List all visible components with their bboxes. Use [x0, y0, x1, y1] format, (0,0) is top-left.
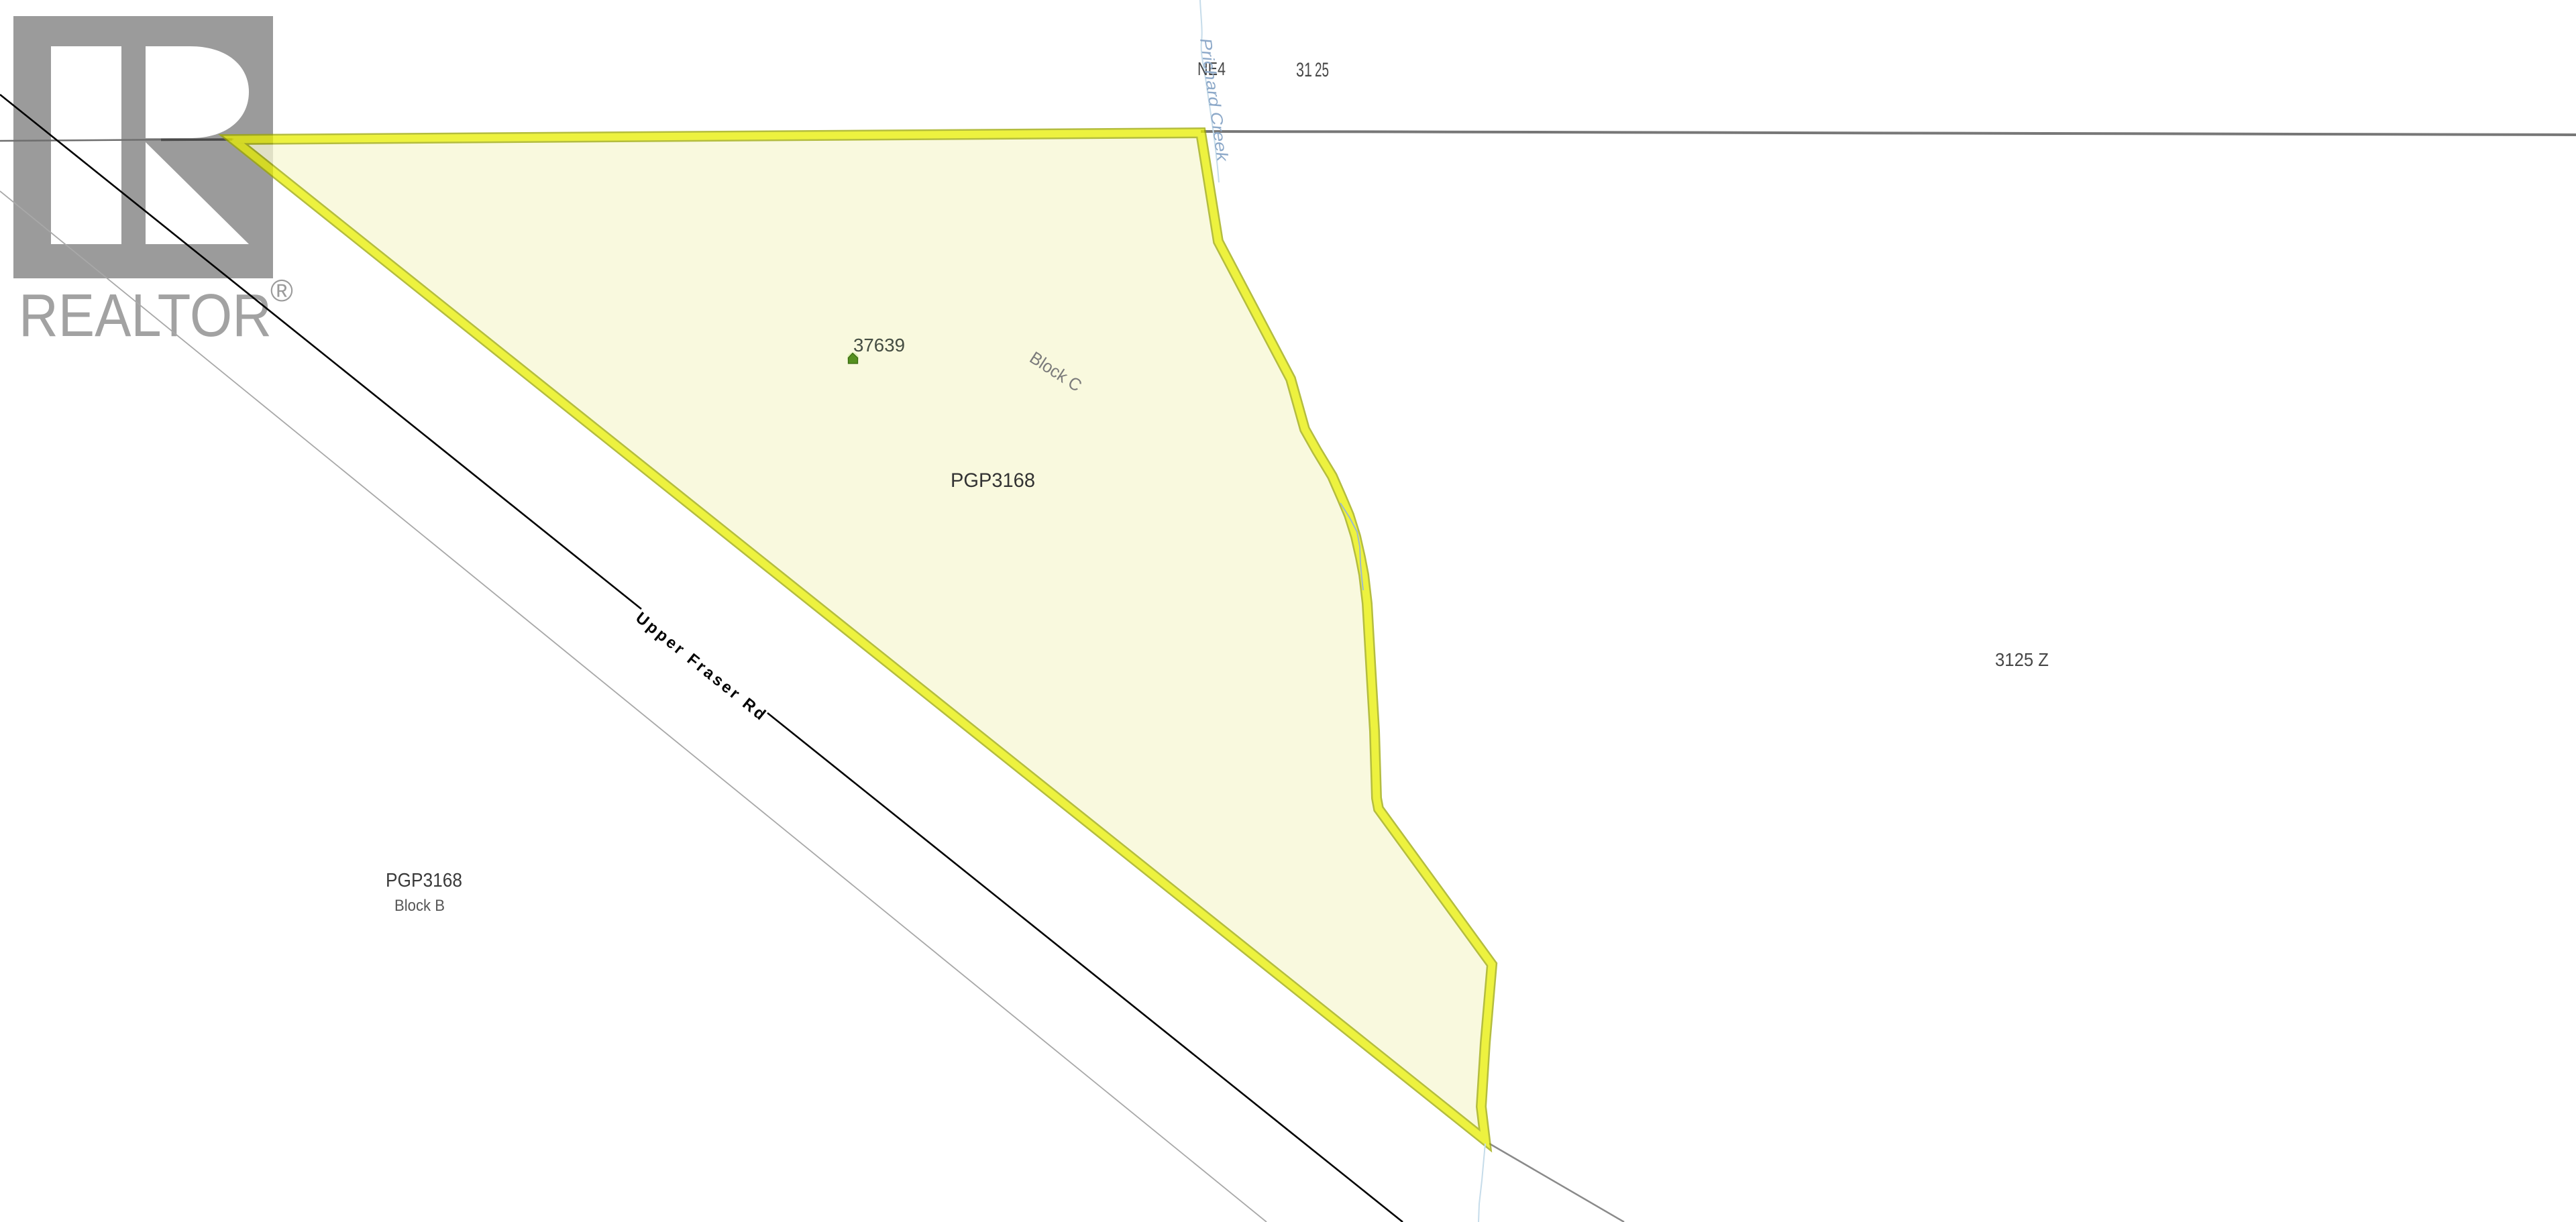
svg-text:37639: 37639	[853, 335, 905, 355]
svg-text:31: 31	[1296, 59, 1312, 81]
svg-text:REALTOR: REALTOR	[19, 282, 272, 349]
svg-text:Block B: Block B	[394, 897, 445, 915]
svg-text:PGP3168: PGP3168	[386, 870, 462, 891]
svg-text:25: 25	[1315, 59, 1329, 81]
svg-text:®: ®	[270, 273, 293, 308]
svg-text:PGP3168: PGP3168	[951, 469, 1035, 492]
svg-text:3125 Z: 3125 Z	[1995, 649, 2049, 670]
